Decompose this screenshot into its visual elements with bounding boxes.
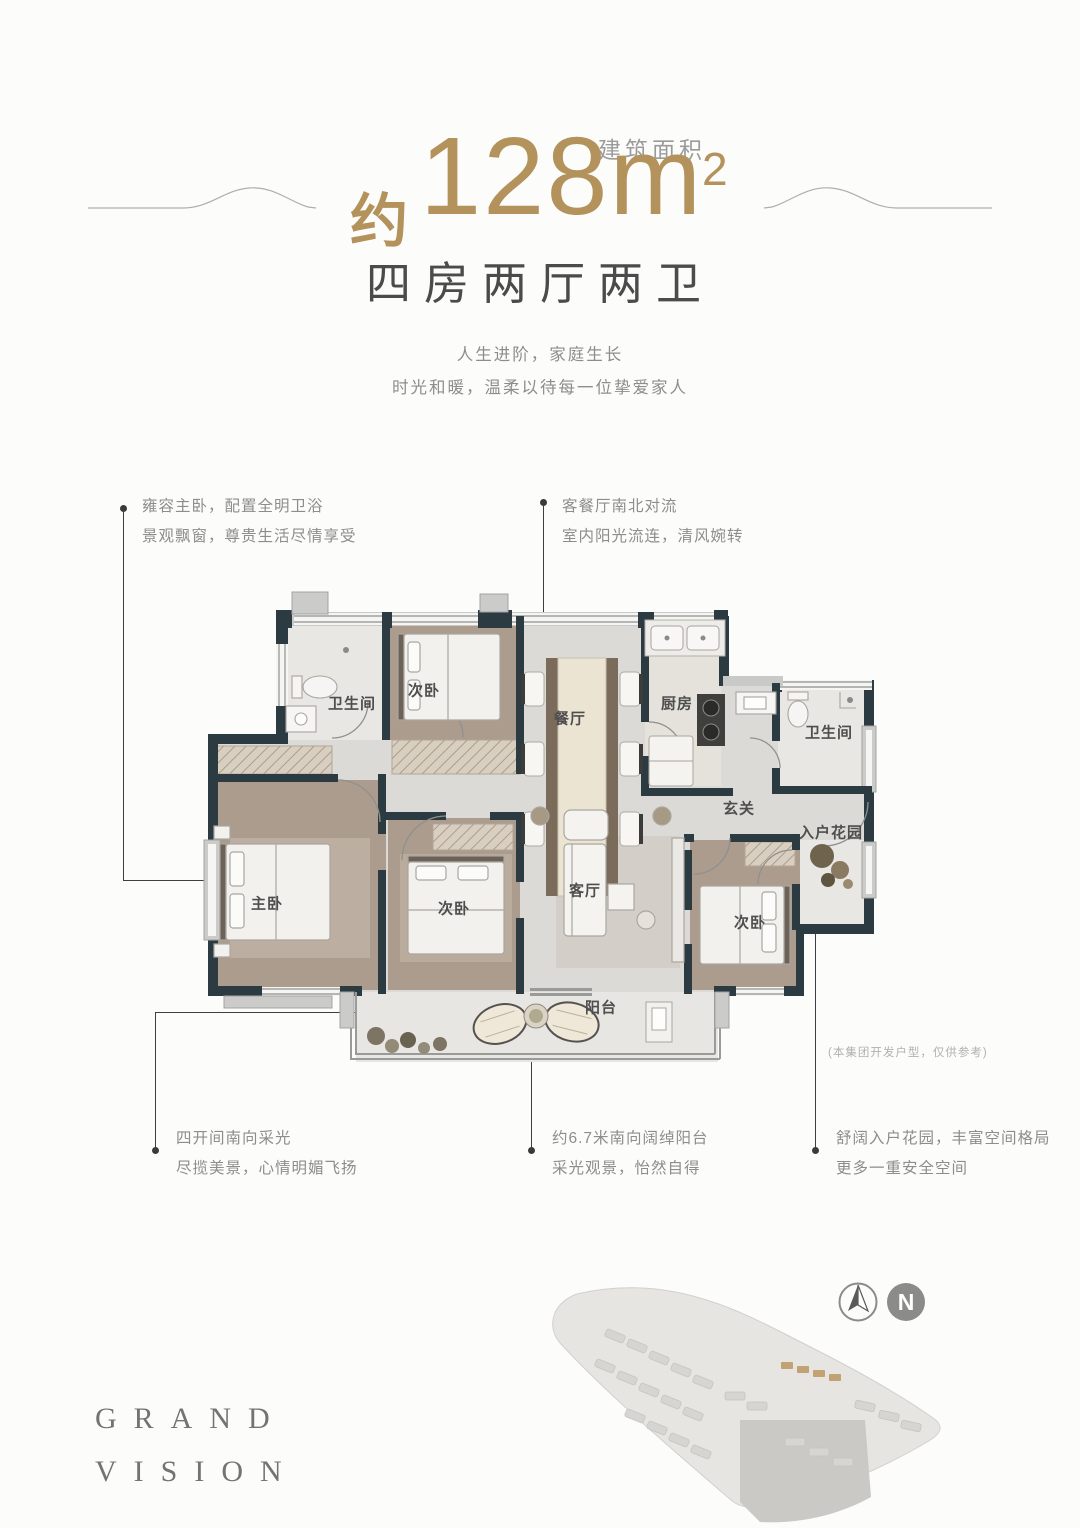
callout-line <box>123 512 124 880</box>
room-label-bedroom-north: 次卧 <box>408 680 440 701</box>
tagline-line2: 时光和暖，温柔以待每一位挚爱家人 <box>0 374 1080 398</box>
callout-balcony-line2: 采光观景，怡然自得 <box>552 1154 709 1184</box>
room-label-bath-2: 卫生间 <box>805 722 853 743</box>
room-label-master-bedroom: 主卧 <box>251 893 283 914</box>
room-label-entry-garden: 入户花园 <box>799 822 863 843</box>
room-label-bath-1: 卫生间 <box>328 693 376 714</box>
callout-living-dining-line1: 客餐厅南北对流 <box>562 492 744 522</box>
callout-master-line1: 雍容主卧，配置全明卫浴 <box>142 492 357 522</box>
callout-balcony: 约6.7米南向阔绰阳台 采光观景，怡然自得 <box>552 1124 709 1184</box>
callout-entry-garden: 舒阔入户花园，丰富空间格局 更多一重安全空间 <box>836 1124 1051 1184</box>
area-number: 128m <box>420 122 703 232</box>
callout-entry-garden-line1: 舒阔入户花园，丰富空间格局 <box>836 1124 1051 1154</box>
callout-dot-south-bays <box>152 1147 159 1154</box>
callout-line <box>155 1012 156 1148</box>
room-label-dining: 餐厅 <box>554 708 586 729</box>
room-label-living: 客厅 <box>569 880 601 901</box>
brand-logotype: GRAND VISION <box>95 1392 299 1498</box>
room-label-balcony: 阳台 <box>585 997 617 1018</box>
area-exponent: 2 <box>702 142 728 196</box>
room-label-bedroom-middle: 次卧 <box>438 898 470 919</box>
room-label-kitchen: 厨房 <box>661 693 693 714</box>
site-map <box>535 1272 980 1528</box>
callout-dot-living-dining <box>540 499 547 506</box>
brand-word-grand: GRAND <box>95 1392 299 1445</box>
callout-entry-garden-line2: 更多一重安全空间 <box>836 1154 1051 1184</box>
callout-balcony-line1: 约6.7米南向阔绰阳台 <box>552 1124 709 1154</box>
floorplan-drawing <box>200 588 880 1068</box>
callout-dot-master <box>120 505 127 512</box>
callout-south-bays-line2: 尽揽美景，心情明媚飞扬 <box>176 1154 358 1184</box>
floorplan-poster: 建筑面积 约 128m 2 四房两厅两卫 人生进阶，家庭生长 时光和暖，温柔以待… <box>0 0 1080 1528</box>
area-about-prefix: 约 <box>350 174 408 258</box>
callout-master: 雍容主卧，配置全明卫浴 景观飘窗，尊贵生活尽情享受 <box>142 492 357 552</box>
tagline-line1: 人生进阶，家庭生长 <box>0 341 1080 365</box>
callout-dot-balcony <box>528 1147 535 1154</box>
callout-living-dining: 客餐厅南北对流 室内阳光流连，清风婉转 <box>562 492 744 552</box>
callout-south-bays: 四开间南向采光 尽揽美景，心情明媚飞扬 <box>176 1124 358 1184</box>
callout-master-line2: 景观飘窗，尊贵生活尽情享受 <box>142 522 357 552</box>
room-label-bedroom-east: 次卧 <box>734 912 766 933</box>
room-label-foyer: 玄关 <box>723 798 755 819</box>
brand-word-vision: VISION <box>95 1445 299 1498</box>
callout-dot-entry-garden <box>812 1147 819 1154</box>
layout-title: 四房两厅两卫 <box>0 247 1080 312</box>
callout-south-bays-line1: 四开间南向采光 <box>176 1124 358 1154</box>
decorative-swoosh-right <box>760 178 992 218</box>
decorative-swoosh-left <box>88 178 320 218</box>
callout-living-dining-line2: 室内阳光流连，清风婉转 <box>562 522 744 552</box>
